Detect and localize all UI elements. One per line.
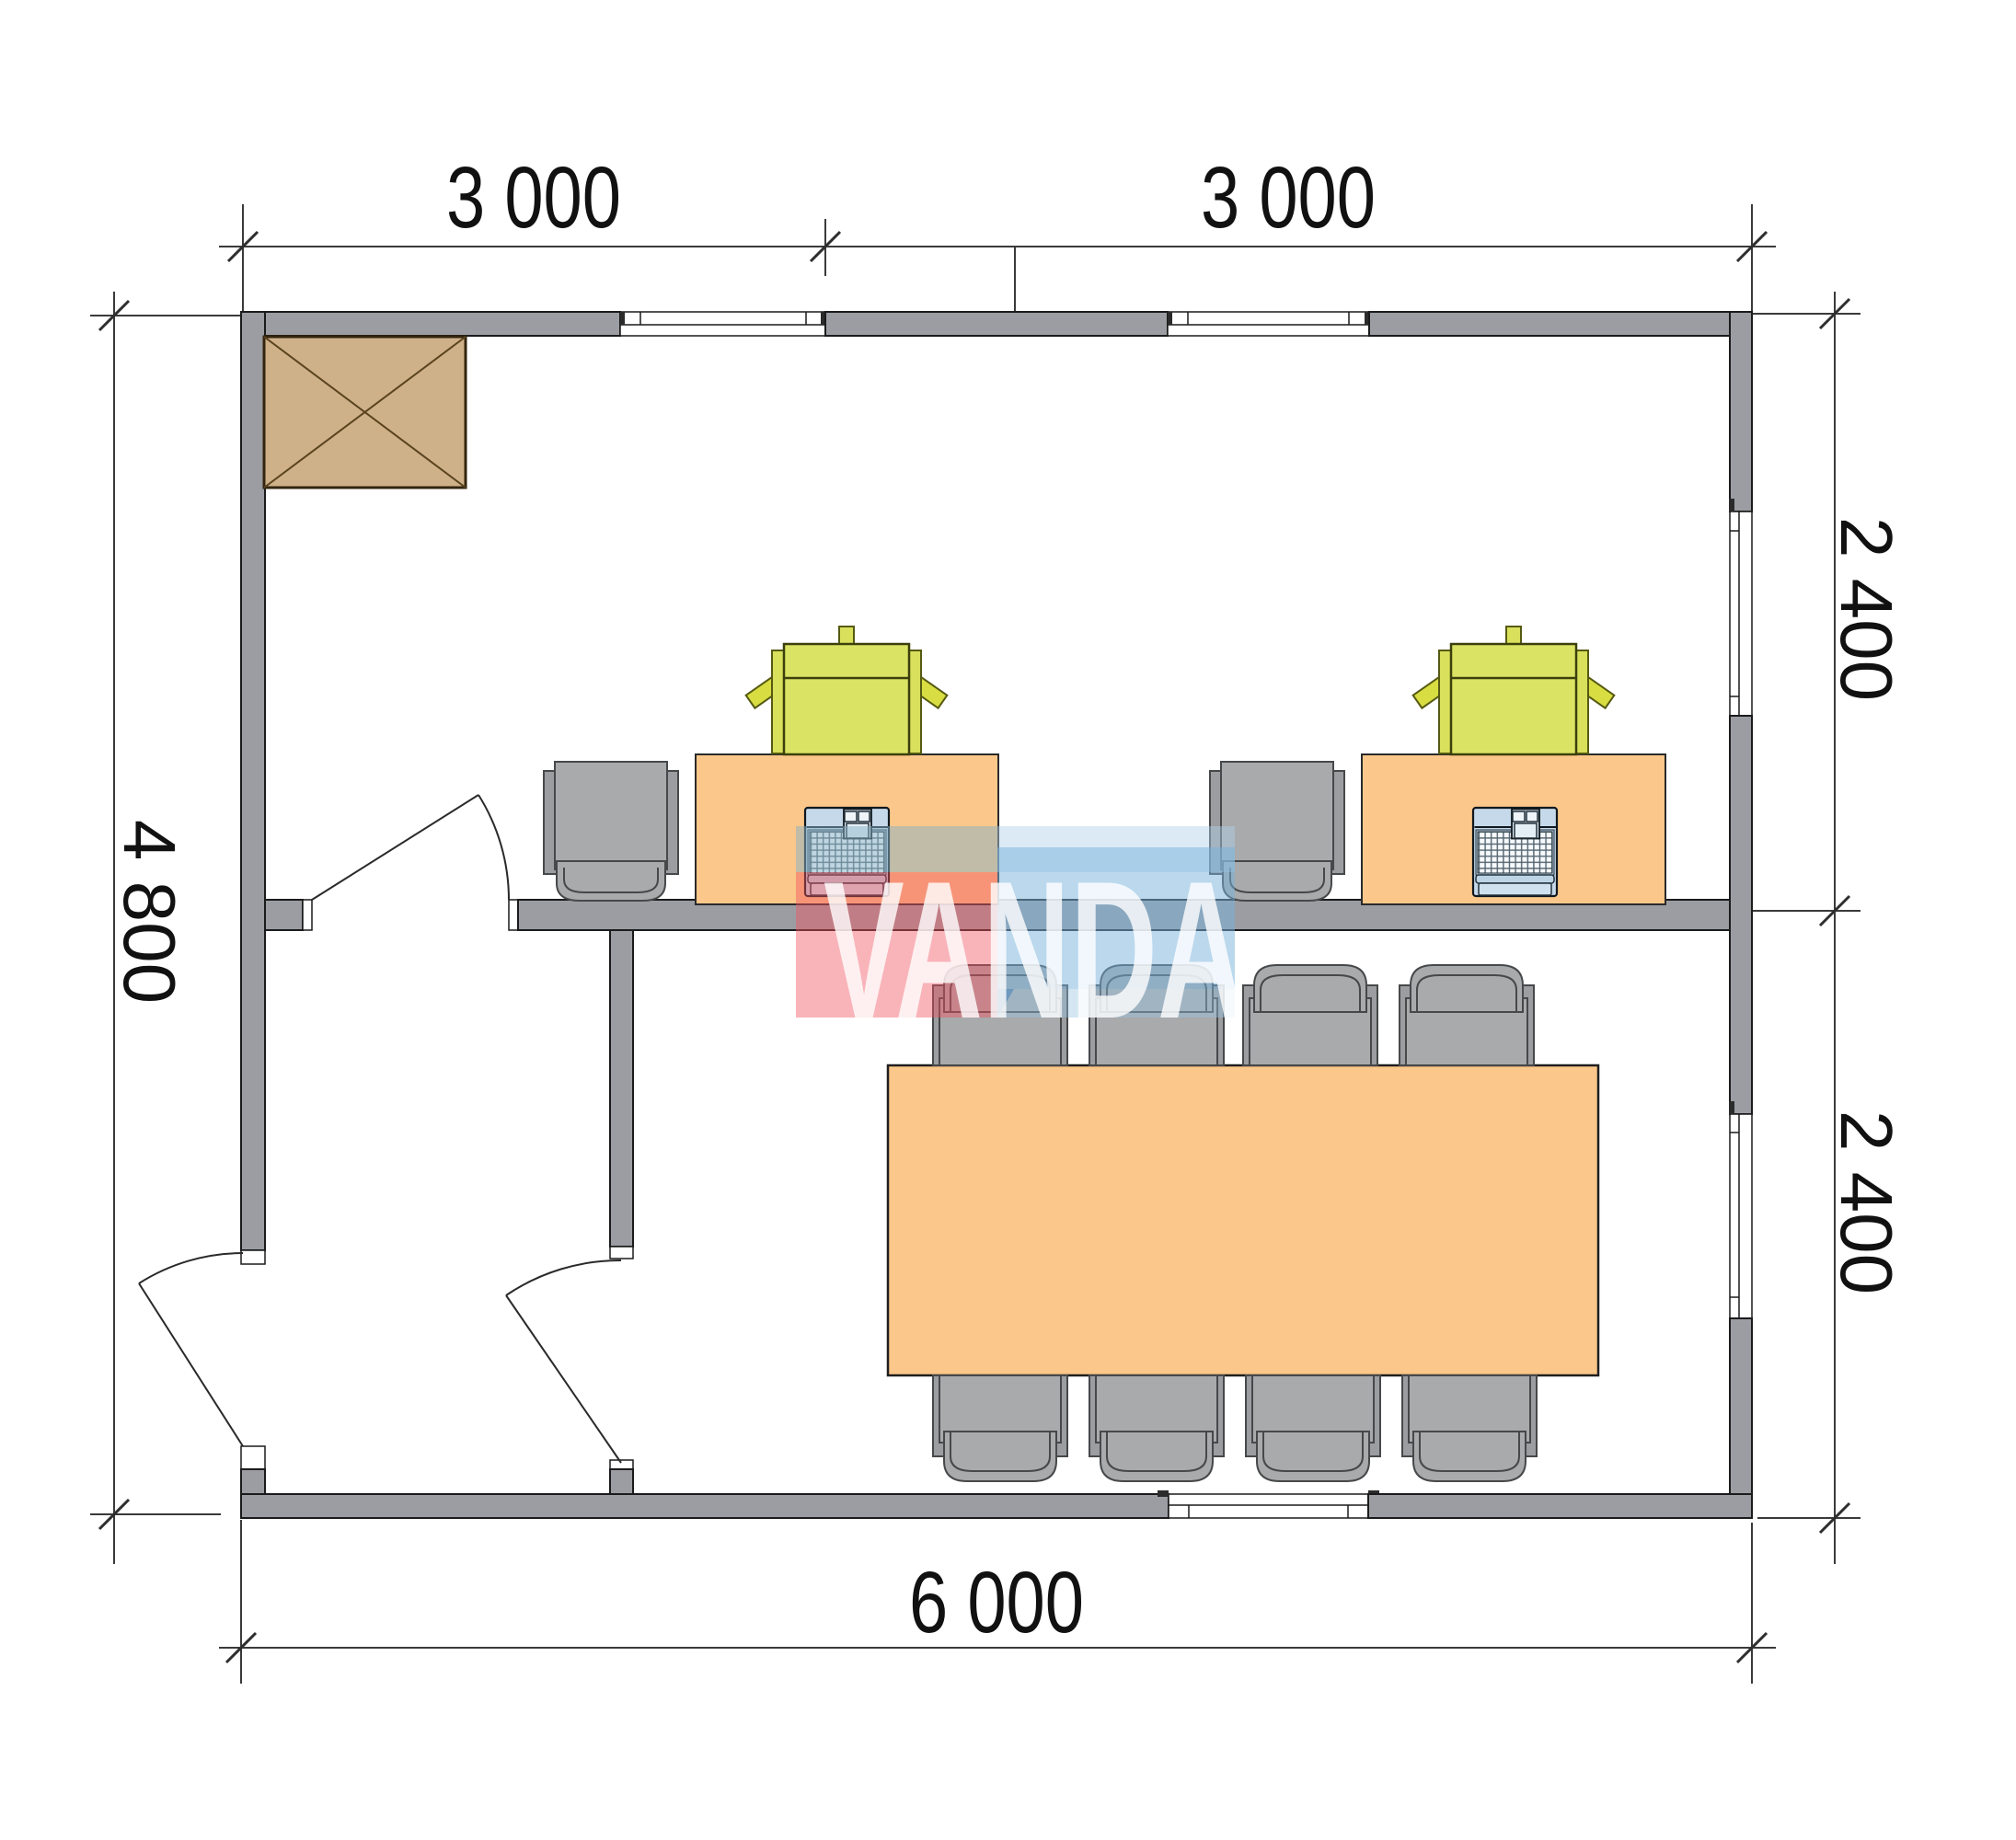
- svg-text:4 800: 4 800: [109, 820, 190, 1004]
- svg-text:6 000: 6 000: [909, 1554, 1084, 1651]
- svg-text:VANDA: VANDA: [824, 841, 1245, 1060]
- svg-text:2 400: 2 400: [1826, 517, 1907, 701]
- svg-text:3 000: 3 000: [446, 149, 621, 247]
- svg-text:2 400: 2 400: [1826, 1110, 1907, 1294]
- svg-text:3 000: 3 000: [1201, 149, 1376, 247]
